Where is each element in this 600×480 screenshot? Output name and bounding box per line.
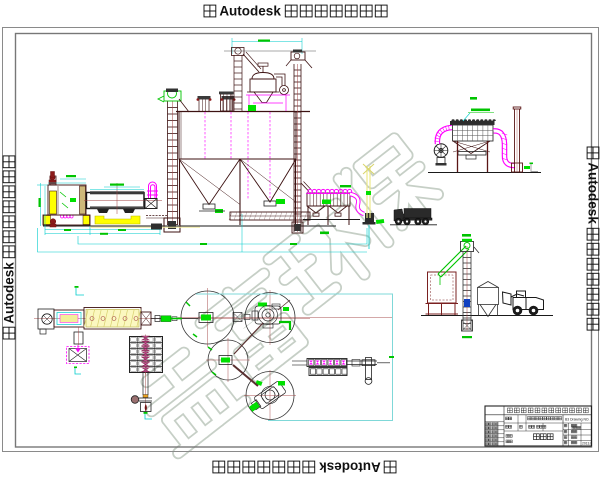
svg-text:Autodesk: Autodesk <box>586 162 600 224</box>
svg-text:Autodesk: Autodesk <box>319 460 381 475</box>
svg-text:B3 Drawing NO.: B3 Drawing NO. <box>565 417 590 421</box>
svg-text:Autodesk: Autodesk <box>219 3 281 18</box>
svg-text:2013.8: 2013.8 <box>582 442 592 446</box>
svg-text:Autodesk: Autodesk <box>1 262 16 324</box>
